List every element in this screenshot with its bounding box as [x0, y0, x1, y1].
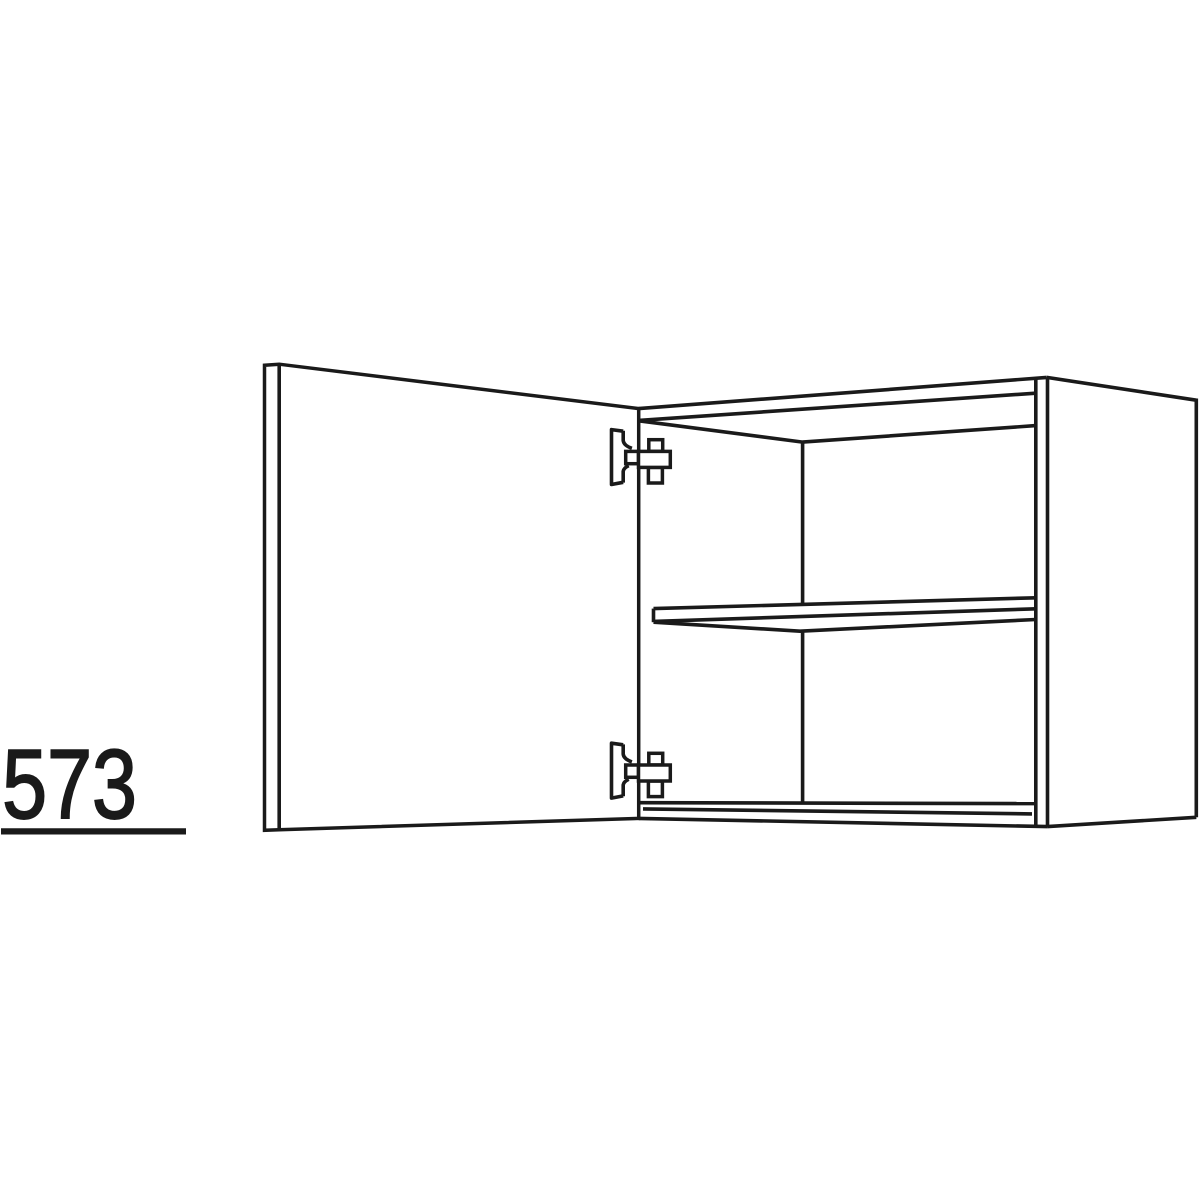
svg-text:573: 573 — [2, 731, 137, 840]
